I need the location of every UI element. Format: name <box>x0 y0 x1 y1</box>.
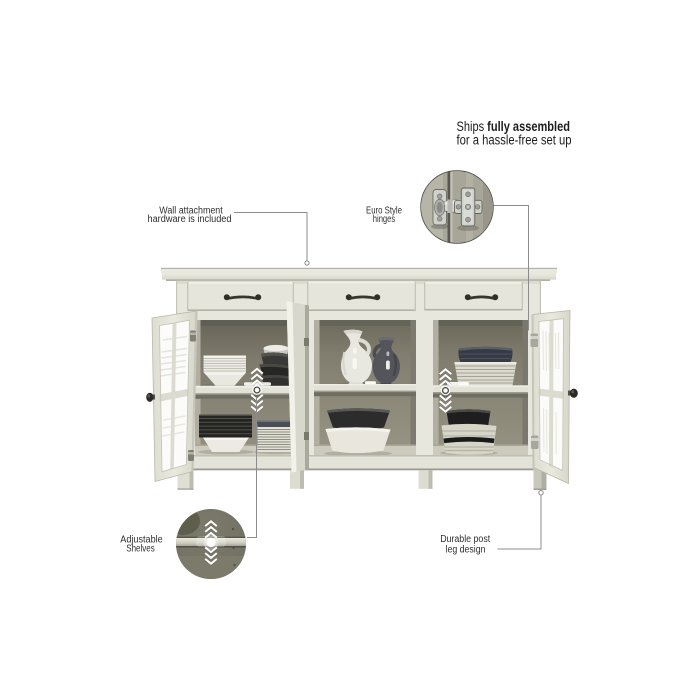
svg-text:leg design: leg design <box>446 544 486 555</box>
svg-text:for a hassle-free set up: for a hassle-free set up <box>457 133 572 149</box>
svg-text:hinges: hinges <box>373 214 396 225</box>
svg-text:hardware is included: hardware is included <box>148 214 232 225</box>
svg-text:Shelves: Shelves <box>126 544 155 555</box>
